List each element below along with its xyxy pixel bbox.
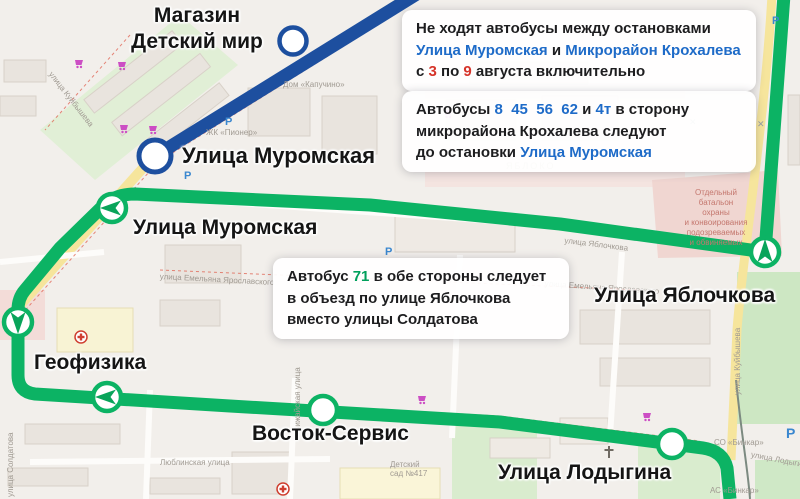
notice-line: до остановки Улица Муромская: [416, 142, 742, 164]
notice-card-no-service: Не ходят автобусы между остановками Улиц…: [402, 10, 756, 91]
stop-marker-vostok-servis: [309, 396, 337, 424]
map-label-as-binkar: АС «Бинкар»: [710, 486, 759, 495]
notice-line: Автобус 71 в обе стороны следует: [287, 266, 555, 288]
stop-label-detskiy-mir: Магазин Детский мир: [118, 3, 276, 55]
parking-icon: Р: [385, 247, 392, 258]
medical-cross-icon: [75, 331, 87, 343]
notice-line: в объезд по улице Яблочкова: [287, 288, 555, 310]
parking-icon: Р: [786, 428, 795, 439]
map-label-detsad: Детский сад №417: [390, 460, 427, 478]
stop-link-muromskaya: Улица Муромская: [416, 42, 548, 59]
stop-label-muromskaya-green: Улица Муромская: [133, 215, 317, 241]
bus-number-71: 71: [353, 268, 370, 285]
map-label-dom-kapuchino: Дом «Капучино»: [283, 80, 345, 89]
stop-label-yablochkova: Улица Яблочкова: [594, 283, 775, 309]
stop-marker-muromskaya-terminal: [139, 140, 171, 172]
notice-card-detour-71: Автобус 71 в обе стороны следует в объез…: [273, 258, 569, 339]
transit-infographic: Дом «Капучино» ЖК «Пионер» ЯБЛОКО улица …: [0, 0, 800, 499]
date-to: 9: [463, 63, 471, 80]
map-label-kuybysheva: улица Куйбышева: [733, 328, 742, 395]
notice-card-short-route: Автобусы 8 45 56 62 и 4т в сторону микро…: [402, 91, 756, 172]
stop-label-muromskaya-terminal: Улица Муромская: [182, 143, 375, 169]
parking-icon: Р: [772, 16, 779, 27]
stop-link-krokhaleva: Микрорайон Крохалева: [565, 42, 741, 59]
map-label-so-binkar: СО «Бинкар»: [714, 438, 764, 447]
notice-line: микрорайона Крохалева следуют: [416, 121, 742, 143]
stop-link-muromskaya: Улица Муромская: [520, 144, 652, 161]
medical-cross-icon: [277, 483, 289, 495]
map-label-soldatova: улица Солдатова: [6, 432, 15, 497]
map-label-lyublinskaya: Люблинская улица: [160, 458, 230, 467]
stop-label-line: Магазин: [118, 3, 276, 29]
stop-label-lodygina: Улица Лодыгина: [498, 460, 671, 486]
bus-numbers: 8 45 56 62: [495, 101, 578, 118]
stop-label-line: Детский мир: [118, 29, 276, 55]
map-label-battalion: Отдельный батальон охраны и конвоировани…: [668, 188, 764, 248]
notice-line: вместо улицы Солдатова: [287, 309, 555, 331]
date-from: 3: [429, 63, 437, 80]
parking-icon: Р: [184, 171, 191, 182]
crossing-x-icon: ✕: [757, 120, 765, 129]
notice-line: с 3 по 9 августа включительно: [416, 61, 742, 83]
map-label-zk-pioner: ЖК «Пионер»: [206, 128, 257, 137]
bus-number-4t: 4т: [596, 101, 612, 118]
church-cross-icon: [605, 446, 614, 458]
stop-marker-lodygina: [658, 430, 686, 458]
notice-line: Не ходят автобусы между остановками: [416, 18, 742, 40]
parking-icon: Р: [225, 117, 232, 128]
notice-line: Автобусы 8 45 56 62 и 4т в сторону: [416, 99, 742, 121]
stop-label-vostok-servis: Восток-Сервис: [252, 421, 409, 447]
notice-line: Улица Муромская и Микрорайон Крохалева: [416, 40, 742, 62]
stop-marker-detskiy-mir: [280, 28, 307, 55]
stop-label-geofizika: Геофизика: [34, 350, 146, 376]
